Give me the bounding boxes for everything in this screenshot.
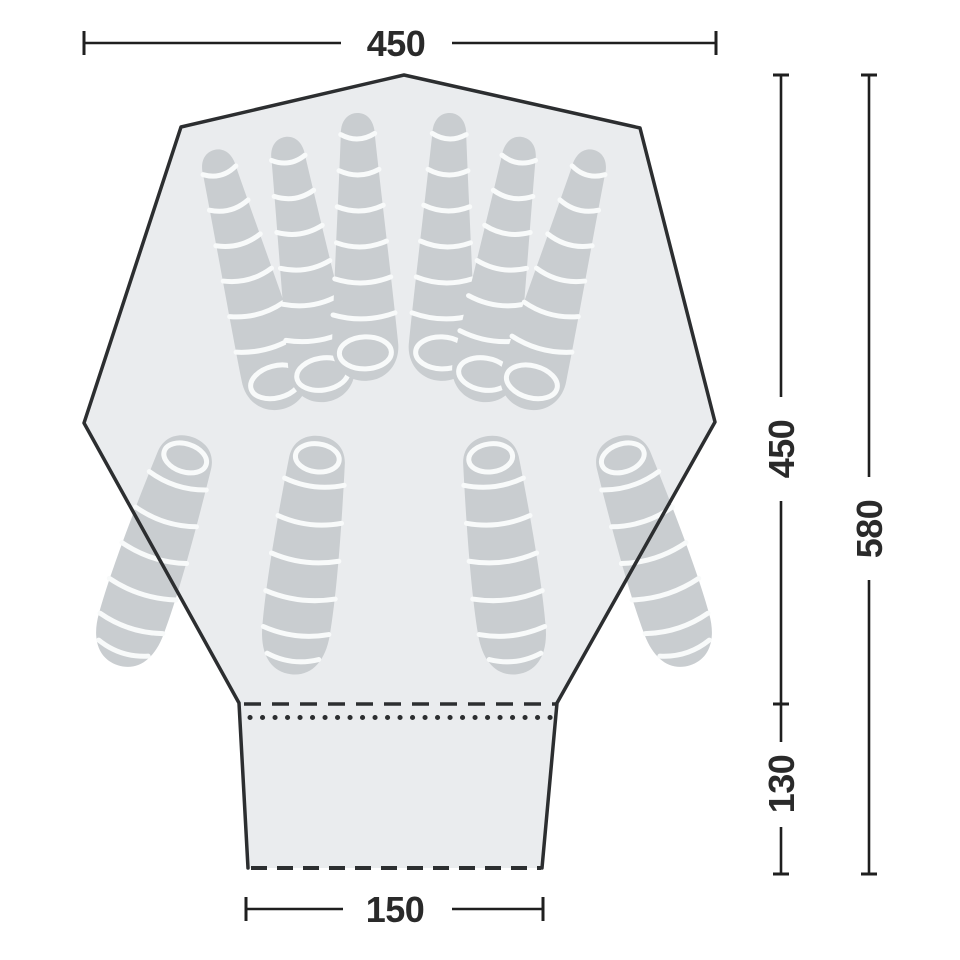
- porch-width-label: 150: [366, 889, 425, 930]
- dimension-total-depth: 580: [849, 75, 890, 874]
- diagram-stage: 450 450 130 580 150: [0, 0, 960, 960]
- total-depth-label: 580: [849, 500, 890, 559]
- tent-floorplan-diagram: 450 450 130 580 150: [0, 0, 960, 960]
- inner-depth-label: 450: [761, 420, 802, 479]
- porch-depth-label: 130: [761, 755, 802, 814]
- top-width-label: 450: [367, 23, 426, 64]
- dimension-top-width: 450: [84, 23, 716, 64]
- dimension-porch-width: 150: [246, 889, 543, 930]
- dimension-inner-depth: 450 130: [761, 75, 802, 874]
